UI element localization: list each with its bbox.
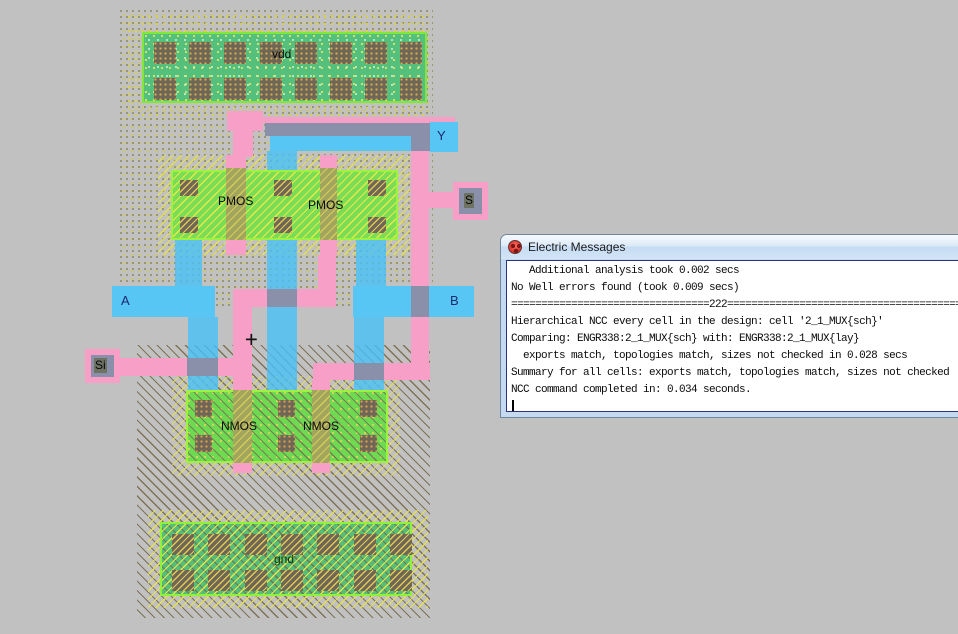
contact-cut[interactable]: [281, 570, 303, 591]
poly-over-right-strap[interactable]: [354, 363, 384, 380]
message-line: No Well errors found (took 0.009 secs): [511, 280, 958, 297]
contact-cut[interactable]: [278, 435, 295, 452]
contact-cut[interactable]: [354, 534, 376, 555]
poly-over-b-bar[interactable]: [411, 286, 429, 317]
nmos1-label[interactable]: NMOS: [221, 419, 257, 433]
electric-messages-window[interactable]: Electric Messages Additional analysis to…: [500, 234, 958, 418]
metal2-over-metal1-corner[interactable]: [411, 123, 430, 151]
poly-over-metal1-center[interactable]: [267, 289, 297, 307]
electric-app-icon: [508, 240, 522, 254]
metal1-y-bus[interactable]: [270, 136, 415, 151]
contact-cut[interactable]: [180, 217, 198, 233]
nmos-contact-grid[interactable]: [186, 390, 388, 463]
contact-cut[interactable]: [317, 570, 339, 591]
layout-canvas[interactable]: vdd Y PMOS PMOS A B Si S N: [0, 0, 958, 634]
pmos-contact-grid[interactable]: [171, 170, 398, 240]
pmos1-label[interactable]: PMOS: [218, 194, 253, 208]
contact-cut[interactable]: [208, 570, 230, 591]
message-line: NCC command completed in: 0.034 seconds.: [511, 382, 958, 399]
message-line: Hierarchical NCC every cell in the desig…: [511, 314, 958, 331]
crosshair-cursor: +: [245, 327, 258, 351]
contact-cut[interactable]: [260, 78, 282, 100]
contact-cut[interactable]: [195, 400, 212, 417]
a-port-label[interactable]: A: [121, 293, 130, 308]
message-line: Comparing: ENGR338:2_1_MUX{sch} with: EN…: [511, 331, 958, 348]
s-export-stub[interactable]: [429, 192, 453, 208]
contact-cut[interactable]: [180, 180, 198, 196]
contact-cut[interactable]: [172, 570, 194, 591]
window-title: Electric Messages: [528, 240, 625, 254]
contact-cut[interactable]: [245, 534, 267, 555]
message-lines: Additional analysis took 0.002 secsNo We…: [507, 261, 958, 399]
si-port-label[interactable]: Si: [94, 358, 107, 373]
contact-cut[interactable]: [195, 435, 212, 452]
vdd-label[interactable]: vdd: [272, 47, 291, 61]
contact-cut[interactable]: [354, 570, 376, 591]
poly-feeder-gate1[interactable]: [233, 131, 253, 157]
contact-cut[interactable]: [317, 534, 339, 555]
contact-cut[interactable]: [368, 180, 386, 196]
contact-cut[interactable]: [189, 78, 211, 100]
contact-cut[interactable]: [208, 534, 230, 555]
contact-cut[interactable]: [154, 78, 176, 100]
text-cursor: [512, 400, 514, 412]
contact-cut[interactable]: [278, 400, 295, 417]
y-port-label[interactable]: Y: [437, 128, 446, 143]
message-line: =================================222====…: [511, 297, 958, 314]
pmos2-label[interactable]: PMOS: [308, 198, 343, 212]
poly-over-a-drop[interactable]: [187, 358, 218, 376]
window-titlebar[interactable]: Electric Messages: [501, 235, 958, 259]
si-poly-wire[interactable]: [118, 358, 252, 376]
contact-cut[interactable]: [295, 78, 317, 100]
contact-cut[interactable]: [365, 78, 387, 100]
contact-cut[interactable]: [274, 180, 292, 196]
messages-console[interactable]: Additional analysis took 0.002 secsNo We…: [506, 260, 958, 412]
contact-cut[interactable]: [360, 435, 377, 452]
poly-pad-top[interactable]: [227, 111, 263, 131]
s-port-label[interactable]: S: [464, 193, 474, 208]
poly-vertical-below-b[interactable]: [411, 317, 429, 363]
nmos2-label[interactable]: NMOS: [303, 419, 339, 433]
contact-cut[interactable]: [368, 217, 386, 233]
contact-cut[interactable]: [400, 42, 422, 64]
b-port-label[interactable]: B: [450, 293, 459, 308]
message-line: Additional analysis took 0.002 secs: [511, 263, 958, 280]
contact-cut[interactable]: [360, 400, 377, 417]
contact-cut[interactable]: [172, 534, 194, 555]
gnd-label[interactable]: gnd: [274, 552, 294, 566]
contact-cut[interactable]: [390, 570, 412, 591]
contact-cut[interactable]: [365, 42, 387, 64]
contact-cut[interactable]: [189, 42, 211, 64]
contact-cut[interactable]: [224, 42, 246, 64]
vdd-power-rail[interactable]: [142, 32, 427, 103]
contact-cut[interactable]: [295, 42, 317, 64]
contact-cut[interactable]: [154, 42, 176, 64]
contact-cut[interactable]: [390, 534, 412, 555]
message-line: Summary for all cells: exports match, to…: [511, 365, 958, 382]
contact-cut[interactable]: [330, 42, 352, 64]
metal2-over-metal1-bar[interactable]: [265, 123, 430, 136]
contact-cut[interactable]: [330, 78, 352, 100]
message-line: exports match, topologies match, sizes n…: [511, 348, 958, 365]
contact-cut[interactable]: [245, 570, 267, 591]
contact-cut[interactable]: [274, 217, 292, 233]
contact-cut[interactable]: [400, 78, 422, 100]
contact-cut[interactable]: [224, 78, 246, 100]
